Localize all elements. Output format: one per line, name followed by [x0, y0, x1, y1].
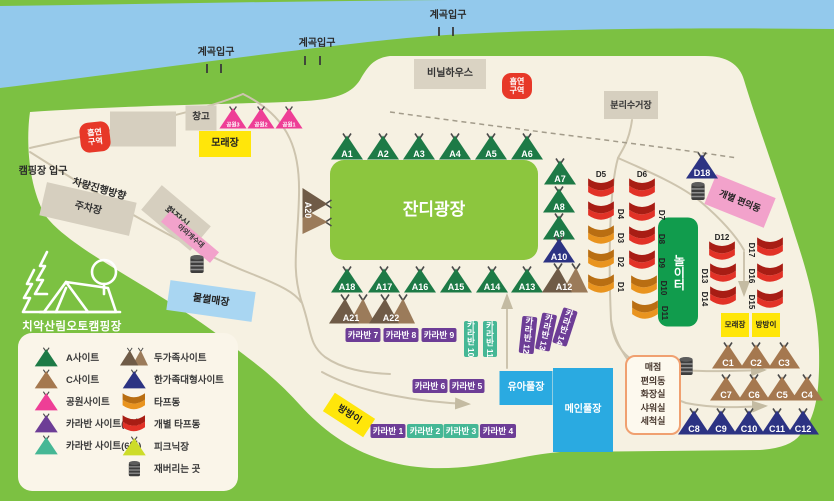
tent-park2: 공원2 [247, 105, 276, 136]
svg-text:C11: C11 [769, 424, 785, 434]
svg-text:공원2: 공원2 [254, 120, 267, 128]
trash-barrel-2 [690, 181, 705, 207]
tarp-D14 [708, 285, 737, 314]
svg-text:A16: A16 [412, 282, 429, 292]
svg-text:C10: C10 [741, 424, 758, 434]
legend-label: C사이트 [66, 372, 99, 386]
tent-icon [120, 369, 148, 391]
tarp-D7-label: D7 [657, 210, 665, 220]
tarp-D15 [755, 288, 784, 317]
caravan-1: 카라반 1 [371, 424, 406, 438]
svg-text:A18: A18 [339, 282, 356, 292]
campground-entrance-label: 캠핑장 입구 [19, 167, 68, 177]
caravan-11: 카라반 11 [483, 321, 497, 357]
zone-grass-plaza: 잔디광장 [330, 160, 538, 260]
smoking-area-badge-left: 흡연 구역 [79, 121, 112, 154]
tent-park3: 공원3 [219, 105, 248, 136]
caravan-6: 카라반 6 [413, 379, 448, 393]
barrel-icon [120, 460, 148, 478]
tarp-D4-label: D4 [616, 209, 624, 219]
logo-art-icon [20, 248, 124, 316]
svg-text:C2: C2 [750, 358, 762, 368]
tent-A15: A15 [439, 265, 473, 300]
campground-map: 비닐하우스창고분리수거장모래장주차장화장실야외개수대물썰매장개별 편의동잔디광장… [0, 0, 834, 501]
tarp-D11-label: D11 [660, 306, 668, 320]
tarp-D11 [630, 299, 659, 328]
tent-A2: A2 [366, 132, 400, 167]
valley-entrance-label-2: 계곡입구 [299, 39, 336, 49]
store-line: 화장실 [641, 388, 666, 402]
zone-vinyl-house: 비닐하우스 [414, 59, 486, 89]
svg-text:A2: A2 [377, 149, 389, 159]
tent-A4: A4 [438, 132, 472, 167]
legend-item-두가족사이트: 두가족사이트 [120, 347, 206, 367]
tarp-D14-label: D14 [700, 292, 708, 307]
svg-text:A22: A22 [383, 313, 400, 323]
legend-item-피크닉장: 피크닉장 [120, 435, 189, 457]
tarp-D13-label: D13 [700, 269, 708, 284]
tent-A13: A13 [510, 265, 544, 300]
svg-text:A21: A21 [343, 313, 360, 323]
svg-text:공원1: 공원1 [282, 120, 295, 128]
svg-text:A10: A10 [551, 252, 568, 262]
tent-A6: A6 [510, 132, 544, 167]
tent-A1: A1 [330, 132, 364, 167]
legend-label: 공원사이트 [66, 394, 110, 408]
tarp-D3-label: D3 [616, 233, 624, 243]
tarp-D12-label: D12 [715, 234, 730, 242]
svg-text:C5: C5 [776, 390, 788, 400]
legend-item-재버리는-곳: 재버리는 곳 [120, 460, 200, 478]
tarp-D9-label: D9 [657, 258, 665, 268]
tent-icon [32, 390, 60, 412]
tent-A5: A5 [474, 132, 508, 167]
svg-text:C12: C12 [795, 424, 812, 434]
legend-item-공원사이트: 공원사이트 [32, 390, 110, 412]
zone-sand-area-right: 모래장 [721, 313, 749, 337]
site-logo: 치악산림오토캠핑장 [16, 248, 128, 334]
caravan-5: 카라반 5 [450, 379, 485, 393]
tent-A3: A3 [402, 132, 436, 167]
caravan-4: 카라반 4 [480, 424, 516, 438]
store-line: 매점 [645, 361, 662, 375]
legend-label: A사이트 [66, 350, 99, 364]
smoking-area-badge-right: 흡연 구역 [502, 73, 532, 99]
tent-C3: C3 [767, 341, 801, 376]
svg-text:C3: C3 [778, 358, 790, 368]
caravan-10: 카라반 10 [464, 321, 478, 357]
tent-icon [32, 412, 60, 434]
tent-A20: A20 [296, 188, 333, 234]
svg-text:A14: A14 [484, 282, 501, 292]
tent-park1: 공원1 [275, 105, 304, 136]
svg-text:A12: A12 [556, 282, 573, 292]
tent-A14: A14 [475, 265, 509, 300]
legend-label: 피크닉장 [154, 439, 189, 453]
tarp-D6-label: D6 [637, 171, 647, 179]
tarp-D16-label: D16 [747, 269, 755, 284]
svg-text:A1: A1 [341, 149, 353, 159]
tarp-icon [120, 413, 148, 434]
tarp-D16 [755, 262, 784, 291]
tarp-D10-label: D10 [659, 281, 667, 296]
tarp-D1-label: D1 [616, 282, 624, 292]
legend-item-C사이트: C사이트 [32, 368, 99, 390]
legend-item-타프동: 타프동 [120, 391, 180, 412]
valley-entrance-label-1: 계곡입구 [198, 48, 235, 58]
tarp-D2-label: D2 [616, 257, 624, 267]
svg-text:C6: C6 [748, 390, 760, 400]
store-block: 매점편의동화장실샤워실세척실 [625, 355, 681, 435]
svg-text:A3: A3 [413, 149, 425, 159]
zone-bangbang-right: 방방이 [752, 313, 780, 337]
legend-label: 두가족사이트 [154, 350, 206, 364]
legend-label: 한가족대형사이트 [154, 372, 224, 386]
caravan-2: 카라반 2 [407, 424, 443, 438]
tent-icon [32, 346, 60, 368]
valley-entrance-label-3: 계곡입구 [430, 11, 467, 21]
tent-C4: C4 [790, 373, 824, 408]
zone-warehouse: 창고 [186, 106, 217, 131]
legend-label: 재버리는 곳 [154, 462, 200, 476]
svg-text:A15: A15 [448, 282, 465, 292]
store-line: 샤워실 [641, 402, 666, 416]
svg-text:C4: C4 [801, 390, 813, 400]
svg-text:A6: A6 [521, 149, 533, 159]
caravan-3: 카라반 3 [444, 424, 479, 438]
trash-barrel-1 [189, 254, 204, 280]
zone-main-pool: 메인풀장 [553, 368, 613, 452]
svg-text:C8: C8 [688, 424, 700, 434]
svg-text:A17: A17 [376, 282, 393, 292]
legend-item-개별-타프동: 개별 타프동 [120, 413, 200, 434]
tent-icon [120, 435, 148, 457]
legend-box: A사이트 C사이트 공원사이트 카라반 사이트(4인) 카라반 사이트(6인) … [18, 333, 238, 491]
tent-C12: C12 [786, 407, 820, 442]
zone-building [110, 112, 176, 147]
svg-text:A20: A20 [303, 202, 313, 219]
logo-text: 치악산림오토캠핑장 [16, 318, 128, 334]
svg-text:A13: A13 [519, 282, 536, 292]
svg-text:C1: C1 [722, 358, 734, 368]
tent-icon [32, 368, 60, 390]
svg-text:공원3: 공원3 [226, 120, 239, 128]
tent-icon [32, 434, 60, 456]
store-line: 편의동 [641, 375, 666, 389]
tarp-icon [120, 391, 148, 412]
double-icon [120, 347, 148, 367]
svg-text:A4: A4 [449, 149, 461, 159]
caravan-9: 카라반 9 [422, 328, 457, 342]
tarp-D5-label: D5 [596, 171, 606, 179]
zone-recycling-station: 분리수거장 [604, 91, 658, 119]
svg-text:C9: C9 [715, 424, 727, 434]
svg-text:C7: C7 [720, 390, 732, 400]
legend-label: 타프동 [154, 395, 180, 409]
legend-item-A사이트: A사이트 [32, 346, 99, 368]
tent-A22: A22 [369, 294, 415, 331]
tarp-D17 [755, 236, 784, 265]
zone-kids-pool: 유아풀장 [500, 371, 553, 405]
tarp-D8-label: D8 [657, 234, 665, 244]
tent-A12: A12 [542, 263, 588, 300]
tarp-D15-label: D15 [747, 295, 755, 310]
legend-label: 개별 타프동 [154, 417, 200, 431]
store-line: 세척실 [641, 415, 666, 429]
svg-text:A7: A7 [554, 174, 566, 184]
svg-text:D18: D18 [694, 168, 711, 178]
svg-text:A8: A8 [553, 202, 565, 212]
tarp-D1 [586, 273, 615, 302]
legend-item-한가족대형사이트: 한가족대형사이트 [120, 369, 224, 391]
tarp-D17-label: D17 [747, 243, 755, 258]
svg-text:A5: A5 [485, 149, 497, 159]
